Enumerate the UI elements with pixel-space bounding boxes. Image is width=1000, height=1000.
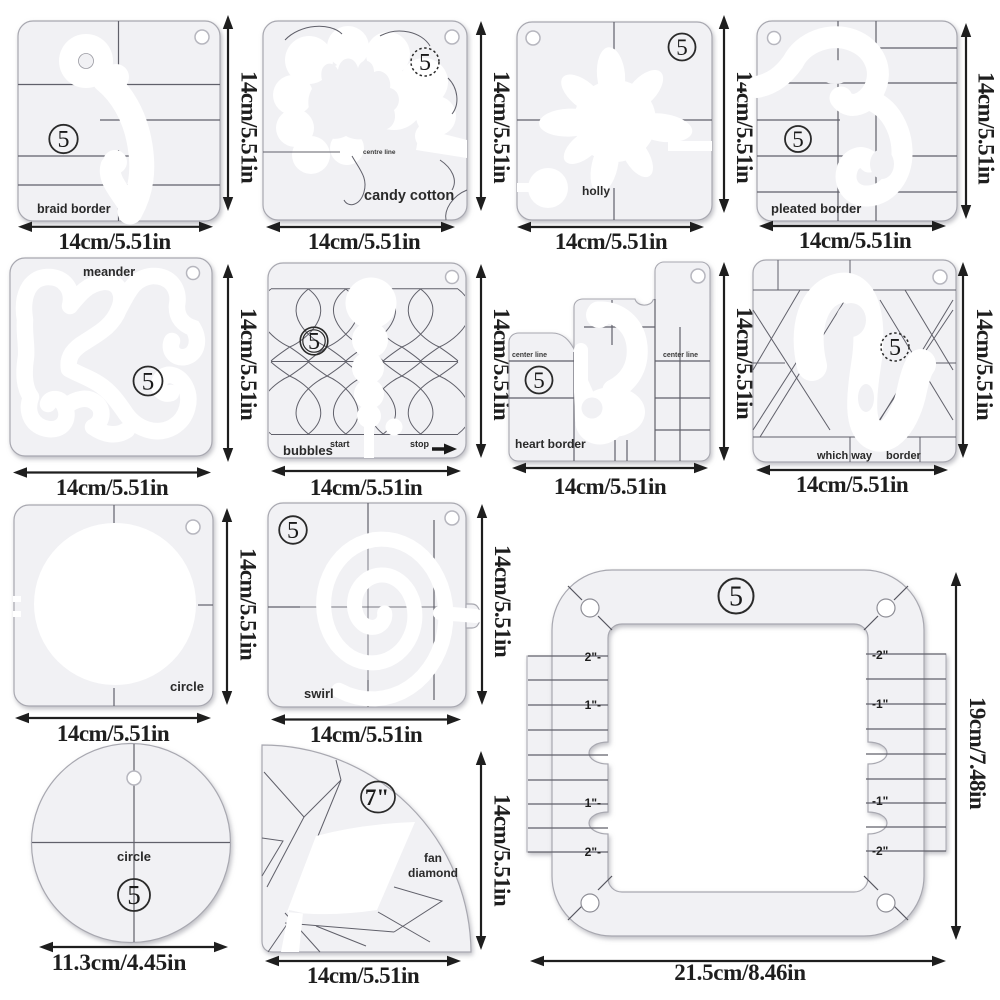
svg-text:5: 5 xyxy=(287,518,299,544)
svg-text:bubbles: bubbles xyxy=(283,443,333,458)
svg-text:21.5cm/8.46in: 21.5cm/8.46in xyxy=(674,960,806,985)
svg-text:stop: stop xyxy=(410,439,430,449)
svg-text:5: 5 xyxy=(142,369,155,396)
svg-text:5: 5 xyxy=(58,127,70,153)
svg-text:5: 5 xyxy=(889,335,901,361)
svg-text:14cm/5.51in: 14cm/5.51in xyxy=(796,472,909,497)
svg-text:14cm/5.51in: 14cm/5.51in xyxy=(57,721,170,746)
svg-text:diamond: diamond xyxy=(408,866,458,880)
svg-text:2"-: 2"- xyxy=(585,650,601,664)
svg-text:5: 5 xyxy=(533,368,545,393)
svg-text:which way: which way xyxy=(816,450,873,462)
svg-text:11.3cm/4.45in: 11.3cm/4.45in xyxy=(52,950,187,976)
svg-text:pleated border: pleated border xyxy=(771,201,861,216)
svg-text:14cm/5.51in: 14cm/5.51in xyxy=(974,72,999,185)
svg-text:14cm/5.51in: 14cm/5.51in xyxy=(489,71,514,184)
svg-text:14cm/5.51in: 14cm/5.51in xyxy=(310,722,423,747)
svg-text:-2": -2" xyxy=(872,648,888,662)
svg-text:-1": -1" xyxy=(872,697,888,711)
svg-text:19cm/7.48in: 19cm/7.48in xyxy=(965,697,990,810)
svg-text:14cm/5.51in: 14cm/5.51in xyxy=(490,545,515,658)
svg-text:1"-: 1"- xyxy=(585,796,601,810)
svg-text:swirl: swirl xyxy=(304,686,334,701)
svg-text:14cm/5.51in: 14cm/5.51in xyxy=(237,71,262,184)
svg-text:center line: center line xyxy=(512,352,547,359)
svg-text:5: 5 xyxy=(729,582,743,613)
svg-text:candy cotton: candy cotton xyxy=(364,188,454,204)
svg-text:circle: circle xyxy=(170,679,204,694)
svg-text:7": 7" xyxy=(365,785,389,810)
svg-text:braid border: braid border xyxy=(37,202,111,216)
svg-text:fan: fan xyxy=(424,851,442,865)
svg-text:center line: center line xyxy=(663,352,698,359)
svg-text:14cm/5.51in: 14cm/5.51in xyxy=(236,308,261,421)
svg-text:border: border xyxy=(886,450,922,462)
svg-text:14cm/5.51in: 14cm/5.51in xyxy=(56,475,169,500)
svg-text:meander: meander xyxy=(83,265,135,279)
svg-text:centre line: centre line xyxy=(363,149,396,156)
svg-text:5: 5 xyxy=(792,127,804,152)
svg-text:5: 5 xyxy=(676,35,688,60)
svg-text:1"-: 1"- xyxy=(585,698,601,712)
svg-text:circle: circle xyxy=(117,849,151,864)
svg-text:2"-: 2"- xyxy=(585,845,601,859)
svg-text:14cm/5.51in: 14cm/5.51in xyxy=(310,475,423,500)
svg-text:-1": -1" xyxy=(872,794,888,808)
svg-text:14cm/5.51in: 14cm/5.51in xyxy=(490,794,515,907)
svg-text:holly: holly xyxy=(582,184,610,198)
svg-text:14cm/5.51in: 14cm/5.51in xyxy=(58,229,171,254)
svg-text:14cm/5.51in: 14cm/5.51in xyxy=(554,474,667,499)
svg-text:14cm/5.51in: 14cm/5.51in xyxy=(555,229,668,254)
svg-text:5: 5 xyxy=(419,50,431,76)
svg-text:14cm/5.51in: 14cm/5.51in xyxy=(236,548,261,661)
svg-text:5: 5 xyxy=(127,880,141,910)
svg-text:start: start xyxy=(330,439,350,449)
svg-text:-2": -2" xyxy=(872,844,888,858)
svg-text:14cm/5.51in: 14cm/5.51in xyxy=(308,229,421,254)
svg-text:heart border: heart border xyxy=(515,437,586,451)
svg-text:14cm/5.51in: 14cm/5.51in xyxy=(307,963,420,988)
svg-text:14cm/5.51in: 14cm/5.51in xyxy=(799,228,912,253)
svg-text:14cm/5.51in: 14cm/5.51in xyxy=(972,308,997,421)
